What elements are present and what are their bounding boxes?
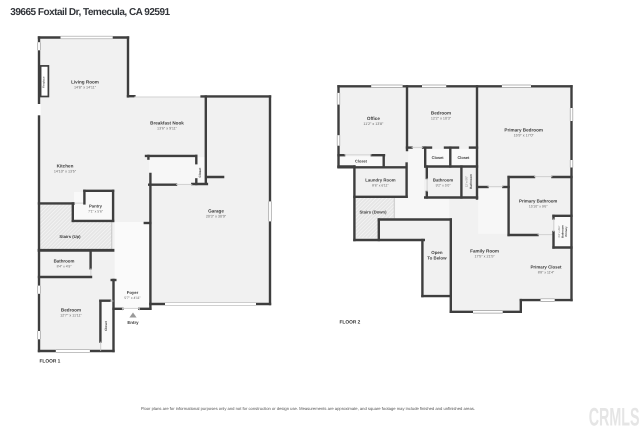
svg-text:20'3" x 30'9": 20'3" x 30'9" <box>206 215 227 219</box>
svg-text:Fireplace: Fireplace <box>43 76 46 88</box>
svg-text:8'6" x 6'11": 8'6" x 6'11" <box>372 183 389 187</box>
svg-text:7'1" x 5'6": 7'1" x 5'6" <box>88 210 104 214</box>
svg-text:39665 Foxtail Dr, Temecula, CA: 39665 Foxtail Dr, Temecula, CA 92591 <box>10 7 170 18</box>
svg-text:Garage: Garage <box>208 209 224 214</box>
svg-text:Family Room: Family Room <box>470 248 499 253</box>
svg-text:Kitchen: Kitchen <box>57 164 74 169</box>
svg-text:Primary Closet: Primary Closet <box>531 265 563 270</box>
svg-text:9'2" x 5'0": 9'2" x 5'0" <box>436 184 452 188</box>
svg-text:12'7" x 11'11": 12'7" x 11'11" <box>60 314 82 318</box>
svg-text:Open: Open <box>431 250 443 255</box>
svg-text:CRMLS: CRMLS <box>589 404 640 426</box>
svg-text:Bathroom: Bathroom <box>562 225 565 238</box>
svg-text:Breakfast Nook: Breakfast Nook <box>150 121 184 126</box>
svg-text:12' x 5'0": 12' x 5'0" <box>464 176 468 187</box>
svg-text:5'7" x 4'11": 5'7" x 4'11" <box>124 296 141 300</box>
svg-text:Bathroom: Bathroom <box>469 174 473 189</box>
svg-text:12'2" x 10'3": 12'2" x 10'3" <box>431 117 452 121</box>
svg-text:Living Room: Living Room <box>71 80 99 85</box>
svg-text:Bathroom: Bathroom <box>433 178 453 183</box>
svg-text:3'4" x 4'11": 3'4" x 4'11" <box>558 225 561 237</box>
svg-text:15'9" x 17'0": 15'9" x 17'0" <box>514 134 535 138</box>
svg-text:Closet: Closet <box>432 155 445 160</box>
svg-text:Foyer: Foyer <box>127 290 139 295</box>
svg-text:Bathroom: Bathroom <box>54 259 75 264</box>
svg-text:Closet: Closet <box>104 320 108 331</box>
svg-text:Stairs (Up): Stairs (Up) <box>59 234 81 239</box>
svg-text:Primary Bedroom: Primary Bedroom <box>504 128 543 133</box>
svg-text:15'10" x 9'6": 15'10" x 9'6" <box>529 204 548 208</box>
svg-text:Office: Office <box>367 116 380 121</box>
svg-text:Stairs (Down): Stairs (Down) <box>360 209 388 214</box>
svg-text:8'4" x 4'9": 8'4" x 4'9" <box>57 265 73 269</box>
svg-text:FLOOR 2: FLOOR 2 <box>340 320 361 326</box>
svg-text:Floor plans are for informatio: Floor plans are for informational purpos… <box>141 406 475 411</box>
svg-text:8'8" x 11'4": 8'8" x 11'4" <box>538 271 555 275</box>
svg-text:Laundry Room: Laundry Room <box>365 177 395 182</box>
svg-text:To Below: To Below <box>427 255 447 260</box>
svg-text:Bedroom: Bedroom <box>431 111 451 116</box>
svg-text:Pantry: Pantry <box>89 204 103 209</box>
svg-text:Closet: Closet <box>457 155 470 160</box>
svg-text:13'6" x 9'11": 13'6" x 9'11" <box>157 127 178 131</box>
svg-text:Primary: Primary <box>565 226 568 237</box>
svg-text:Closet: Closet <box>198 167 202 178</box>
svg-text:Bedroom: Bedroom <box>61 308 81 313</box>
svg-text:FLOOR 1: FLOOR 1 <box>40 359 61 365</box>
svg-text:Primary Bathroom: Primary Bathroom <box>519 198 557 203</box>
svg-text:14'8" x 14'11": 14'8" x 14'11" <box>74 86 97 90</box>
svg-text:14'10" x 13'5": 14'10" x 13'5" <box>54 170 77 174</box>
svg-text:17'5" x 21'5": 17'5" x 21'5" <box>474 254 495 258</box>
svg-text:Closet: Closet <box>355 158 368 163</box>
svg-text:Entry: Entry <box>127 320 139 325</box>
svg-text:11'2" x 13'8": 11'2" x 13'8" <box>363 122 384 126</box>
